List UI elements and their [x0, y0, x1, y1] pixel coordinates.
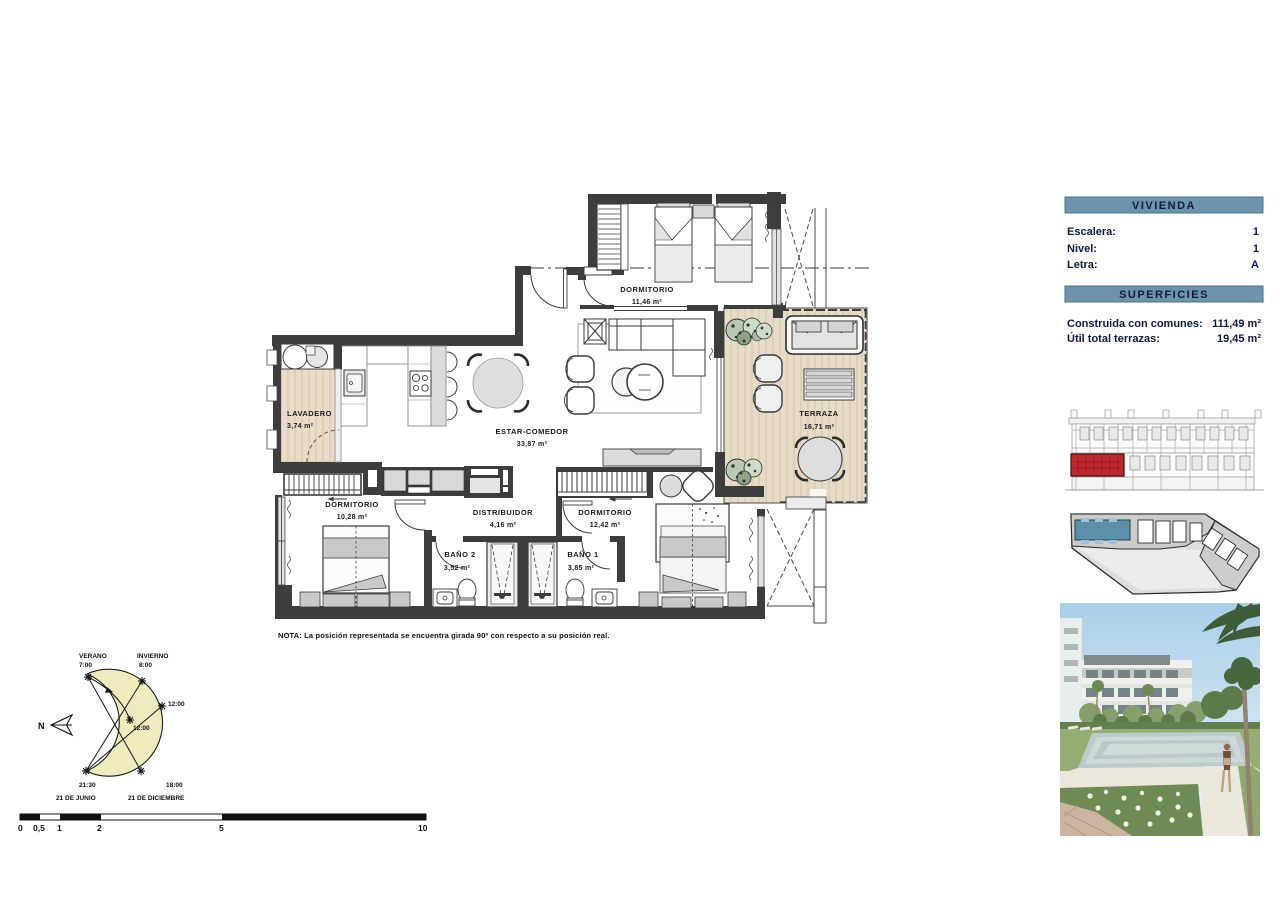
svg-text:1: 1 [1253, 243, 1259, 255]
svg-text:NOTA: La posición representada: NOTA: La posición representada se encuen… [278, 631, 610, 640]
svg-text:10,28 m²: 10,28 m² [337, 514, 368, 521]
svg-text:Nivel:: Nivel: [1067, 243, 1097, 255]
svg-text:3,52 m²: 3,52 m² [444, 565, 471, 572]
svg-text:2: 2 [97, 823, 102, 833]
svg-text:VIVIENDA: VIVIENDA [1132, 200, 1196, 212]
svg-text:DORMITORIO: DORMITORIO [325, 500, 379, 509]
svg-text:12,42 m²: 12,42 m² [590, 522, 621, 529]
svg-text:33,87 m²: 33,87 m² [517, 441, 548, 448]
svg-text:21:30: 21:30 [79, 782, 96, 789]
svg-text:0: 0 [18, 823, 23, 833]
svg-text:Útil total terrazas:: Útil total terrazas: [1067, 332, 1160, 345]
svg-text:1: 1 [1253, 226, 1259, 238]
svg-text:11,46 m²: 11,46 m² [632, 299, 662, 306]
svg-text:DORMITORIO: DORMITORIO [578, 508, 632, 517]
svg-text:LAVADERO: LAVADERO [287, 409, 332, 418]
svg-text:Escalera:: Escalera: [1067, 226, 1116, 238]
svg-text:8:00: 8:00 [139, 662, 152, 669]
svg-text:21 DE JUNIO: 21 DE JUNIO [56, 795, 96, 802]
svg-text:111,49 m²: 111,49 m² [1212, 318, 1261, 330]
svg-text:TERRAZA: TERRAZA [799, 409, 838, 418]
svg-text:21 DE DICIEMBRE: 21 DE DICIEMBRE [128, 795, 185, 802]
svg-text:5: 5 [219, 823, 224, 833]
svg-text:12:00: 12:00 [133, 725, 150, 732]
svg-text:18:00: 18:00 [166, 782, 183, 789]
svg-text:BAÑO 2: BAÑO 2 [444, 550, 475, 559]
svg-text:A: A [1251, 259, 1259, 271]
svg-text:SUPERFICIES: SUPERFICIES [1119, 289, 1209, 301]
svg-text:0,5: 0,5 [33, 823, 45, 833]
svg-text:12:00: 12:00 [168, 701, 185, 708]
svg-text:ESTAR-COMEDOR: ESTAR-COMEDOR [495, 427, 568, 436]
svg-text:4,16 m²: 4,16 m² [490, 522, 517, 529]
svg-text:3,85 m²: 3,85 m² [568, 565, 595, 572]
svg-text:BAÑO 1: BAÑO 1 [567, 550, 598, 559]
svg-text:DISTRIBUIDOR: DISTRIBUIDOR [473, 508, 533, 517]
svg-text:VERANO: VERANO [79, 653, 107, 660]
svg-text:1: 1 [57, 823, 62, 833]
svg-text:Letra:: Letra: [1067, 259, 1098, 271]
svg-text:10: 10 [418, 823, 428, 833]
svg-text:INVIERNO: INVIERNO [137, 653, 168, 660]
svg-text:DORMITORIO: DORMITORIO [620, 285, 674, 294]
svg-text:N: N [38, 721, 45, 731]
svg-text:3,74 m²: 3,74 m² [287, 423, 314, 430]
svg-text:Construida con comunes:: Construida con comunes: [1067, 318, 1203, 330]
svg-text:7:00: 7:00 [79, 662, 92, 669]
svg-text:16,71 m²: 16,71 m² [804, 424, 835, 431]
svg-text:19,45 m²: 19,45 m² [1217, 333, 1261, 345]
